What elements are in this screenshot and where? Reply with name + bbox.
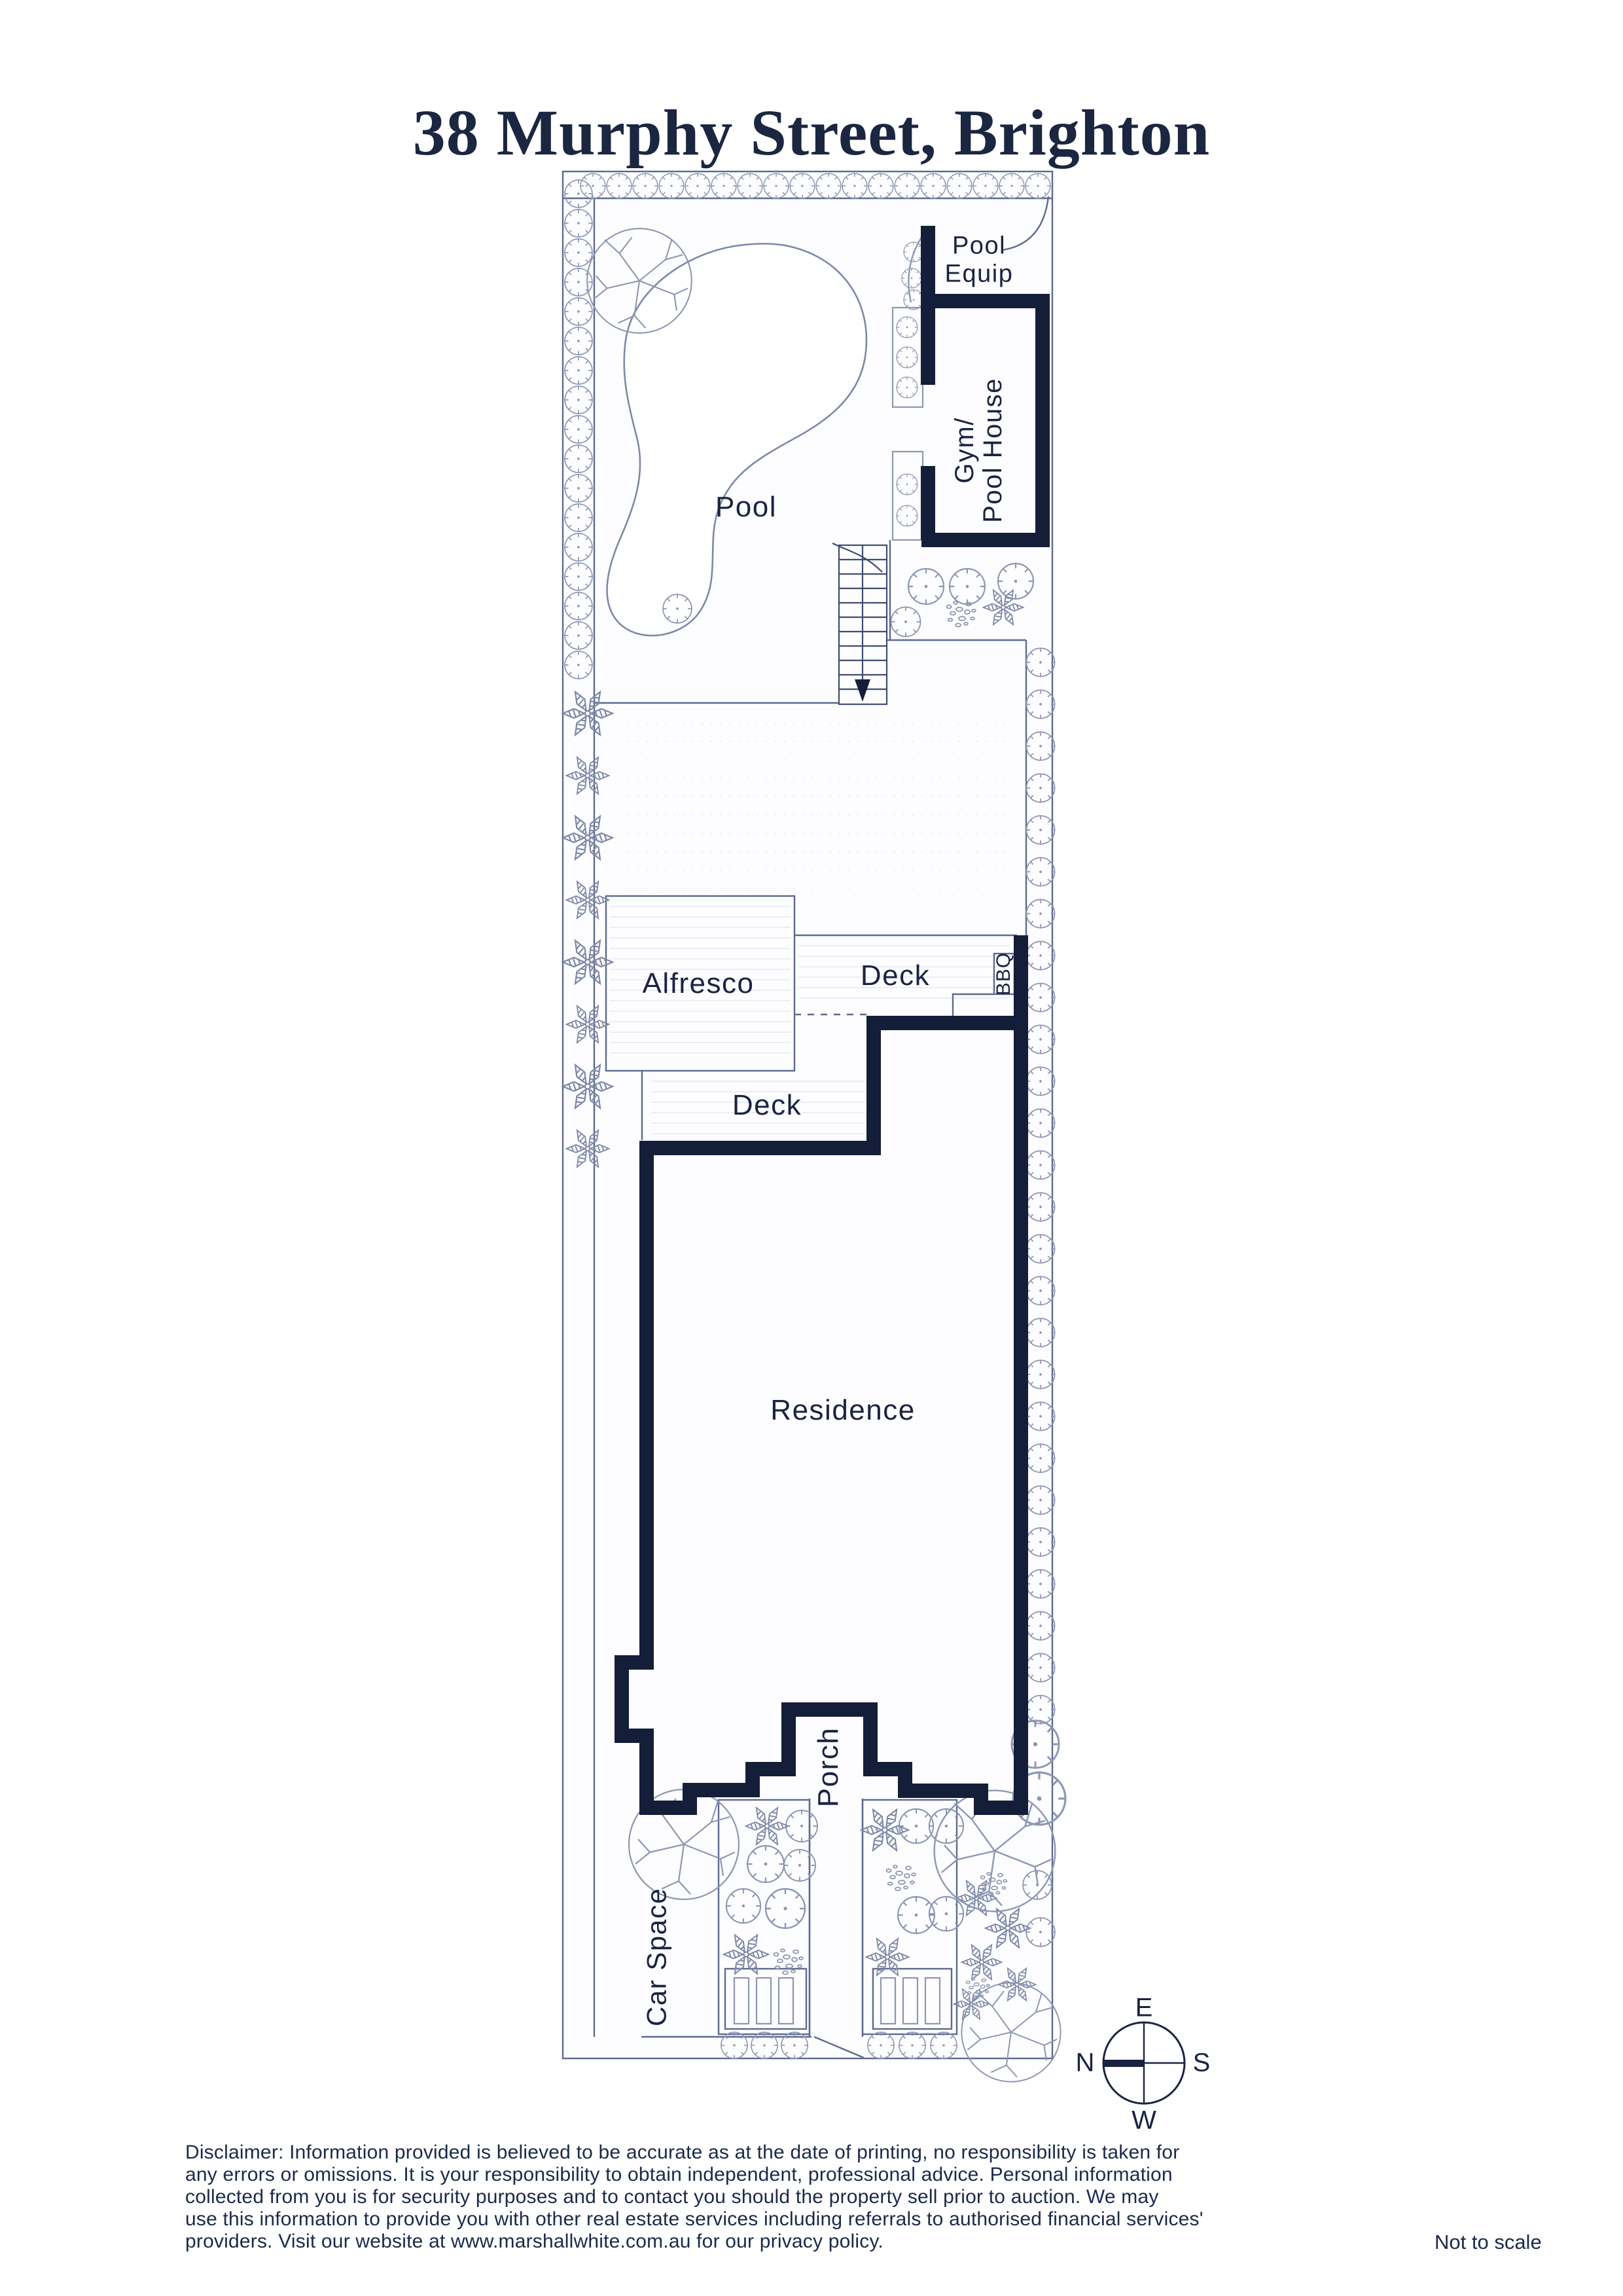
label-pool-equip: Pool Equip (945, 232, 1014, 287)
scale-note: Not to scale (1435, 2231, 1542, 2254)
compass-w: W (1132, 2106, 1156, 2136)
label-pool: Pool (715, 492, 777, 523)
floorplan-page: 38 Murphy Street, Brighton Pool Pool Equ… (0, 0, 1623, 2296)
compass-e: E (1135, 1994, 1153, 2023)
compass-icon (1103, 2022, 1185, 2104)
disclaimer-line: providers. Visit our website at www.mars… (185, 2231, 1363, 2253)
disclaimer-line: use this information to provide you with… (185, 2208, 1363, 2231)
label-alfresco: Alfresco (643, 968, 755, 999)
disclaimer-line: collected from you is for security purpo… (185, 2186, 1363, 2208)
site-plan-graphics (0, 0, 1623, 2296)
label-residence: Residence (770, 1395, 915, 1426)
label-deck-lower: Deck (732, 1090, 802, 1121)
label-gym-pool-house: Gym/ Pool House (951, 378, 1007, 523)
compass-north-pointer (1103, 2060, 1144, 2067)
compass-s: S (1193, 2049, 1211, 2078)
compass-n: N (1076, 2049, 1095, 2078)
label-deck-upper: Deck (861, 960, 930, 992)
label-porch: Porch (813, 1727, 844, 1807)
label-car-space: Car Space (641, 1888, 671, 2026)
disclaimer-line: Disclaimer: Information provided is beli… (185, 2142, 1363, 2164)
disclaimer-line: any errors or omissions. It is your resp… (185, 2164, 1363, 2186)
page-title: 38 Murphy Street, Brighton (0, 95, 1623, 170)
disclaimer: Disclaimer: Information provided is beli… (185, 2142, 1363, 2253)
label-bbq: BBQ (993, 952, 1014, 996)
